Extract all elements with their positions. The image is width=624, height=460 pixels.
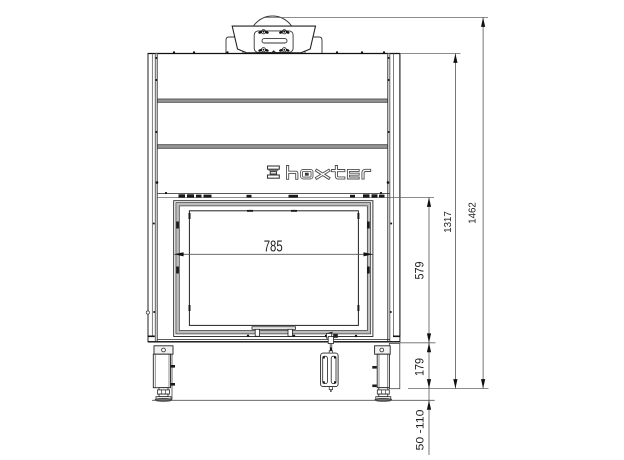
- svg-text:1462: 1462: [467, 202, 479, 224]
- svg-text:1317: 1317: [442, 211, 454, 233]
- svg-text:179: 179: [415, 358, 427, 376]
- svg-text:579: 579: [415, 262, 427, 280]
- svg-text:50 -110: 50 -110: [415, 410, 427, 451]
- svg-text:785: 785: [264, 239, 283, 256]
